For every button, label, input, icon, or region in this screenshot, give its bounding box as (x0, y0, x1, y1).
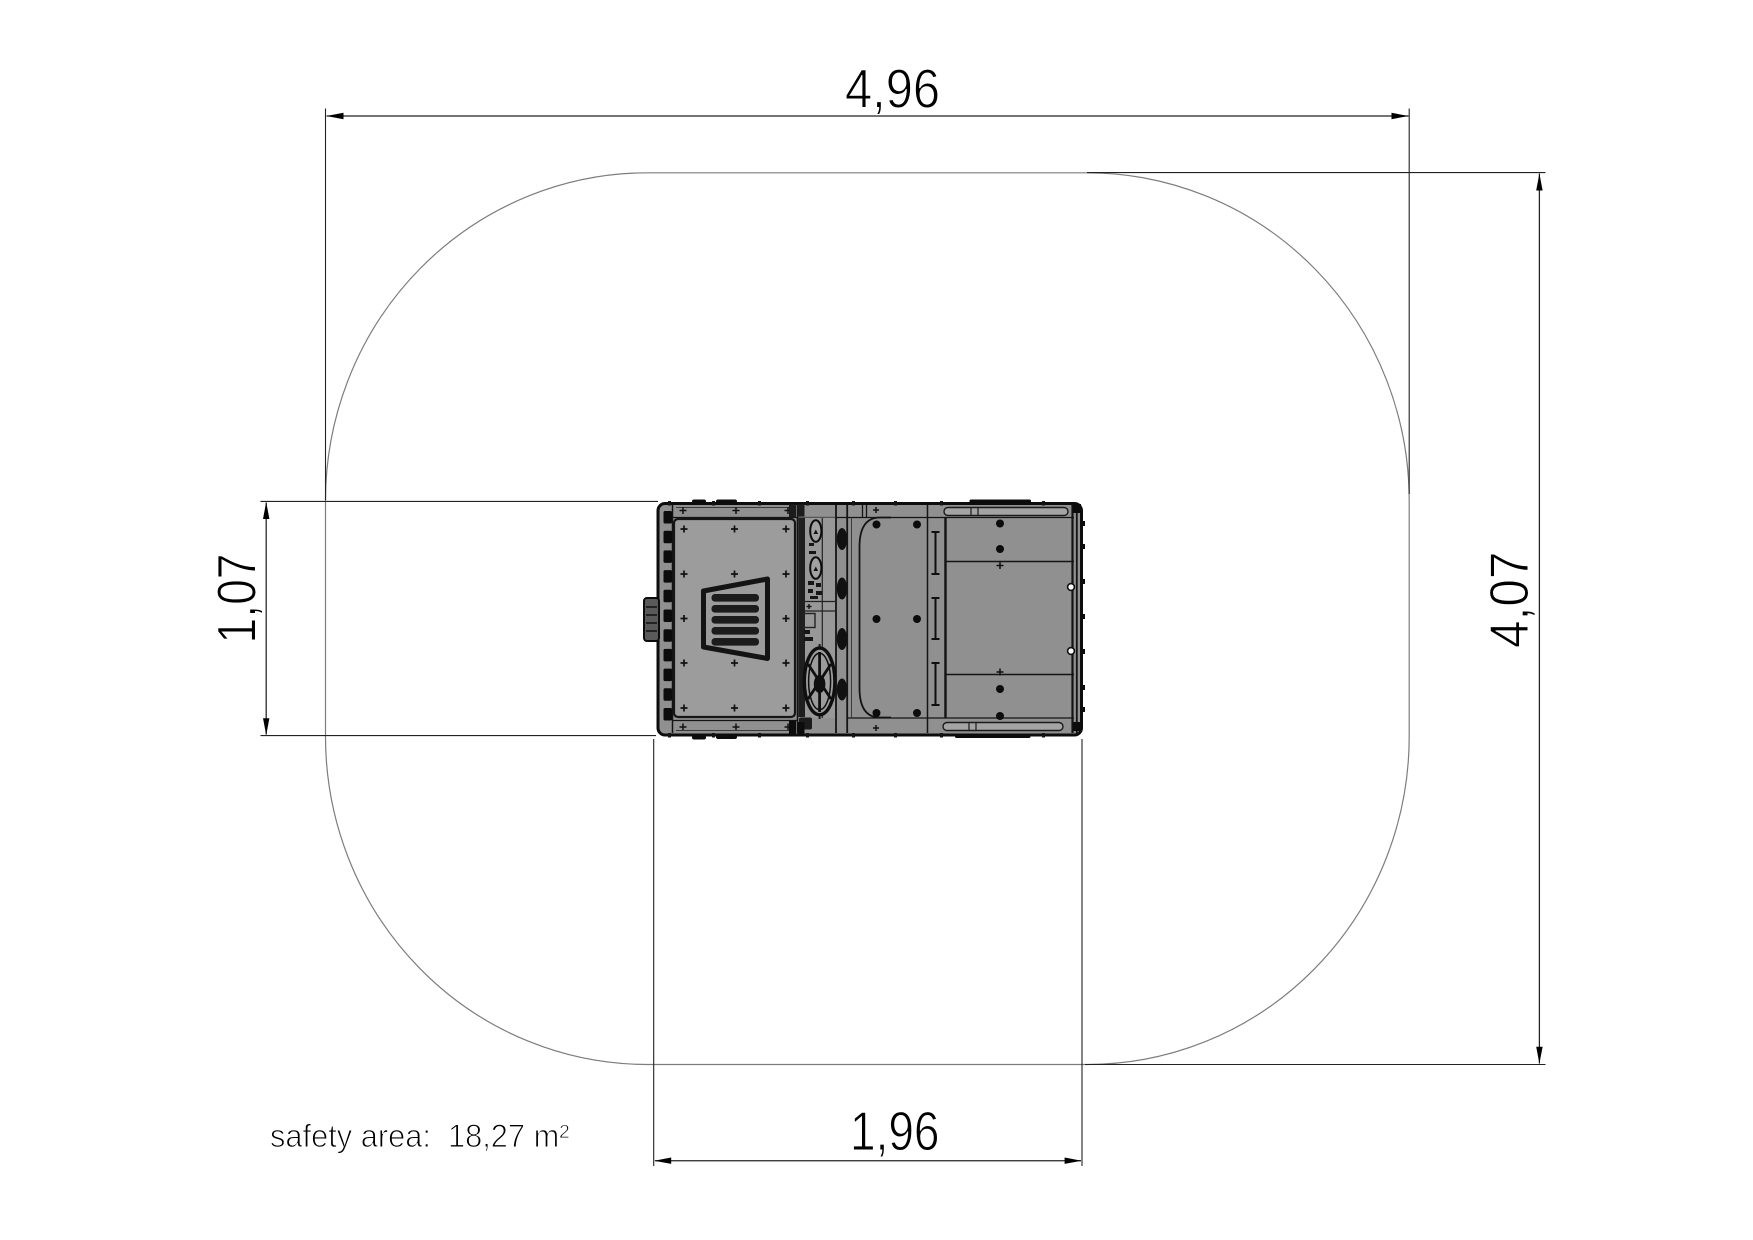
svg-text:4,07: 4,07 (1478, 552, 1540, 649)
svg-text:1,07: 1,07 (206, 554, 268, 644)
svg-text:safety area: 18,27 m²: safety area: 18,27 m² (270, 1118, 570, 1154)
svg-text:4,96: 4,96 (845, 58, 940, 120)
svg-text:1,96: 1,96 (850, 1100, 940, 1162)
